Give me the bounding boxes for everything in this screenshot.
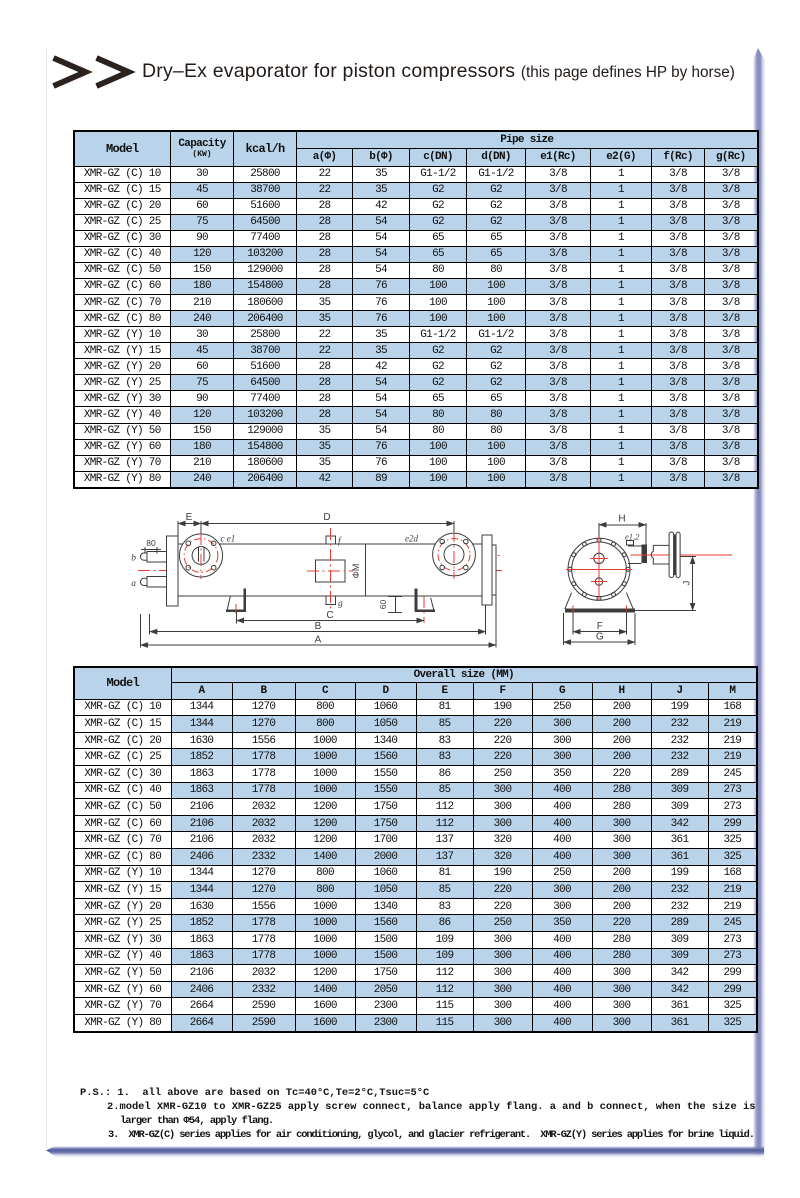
svg-text:F: F [597,621,603,632]
svg-text:J: J [682,581,692,586]
svg-text:c e1: c e1 [221,534,236,544]
svg-text:C: C [326,610,333,621]
svg-text:ΦM: ΦM [351,564,361,579]
svg-text:g: g [338,599,343,609]
svg-text:D: D [323,512,330,523]
svg-text:80: 80 [146,538,156,548]
svg-text:e2d: e2d [405,534,418,544]
svg-text:E: E [186,512,193,523]
svg-text:b: b [131,554,136,564]
svg-text:H: H [618,514,625,525]
svg-text:a: a [131,579,136,589]
svg-text:B: B [315,621,322,632]
svg-text:A: A [315,635,322,646]
svg-text:G: G [596,632,604,643]
svg-text:60: 60 [378,600,388,610]
